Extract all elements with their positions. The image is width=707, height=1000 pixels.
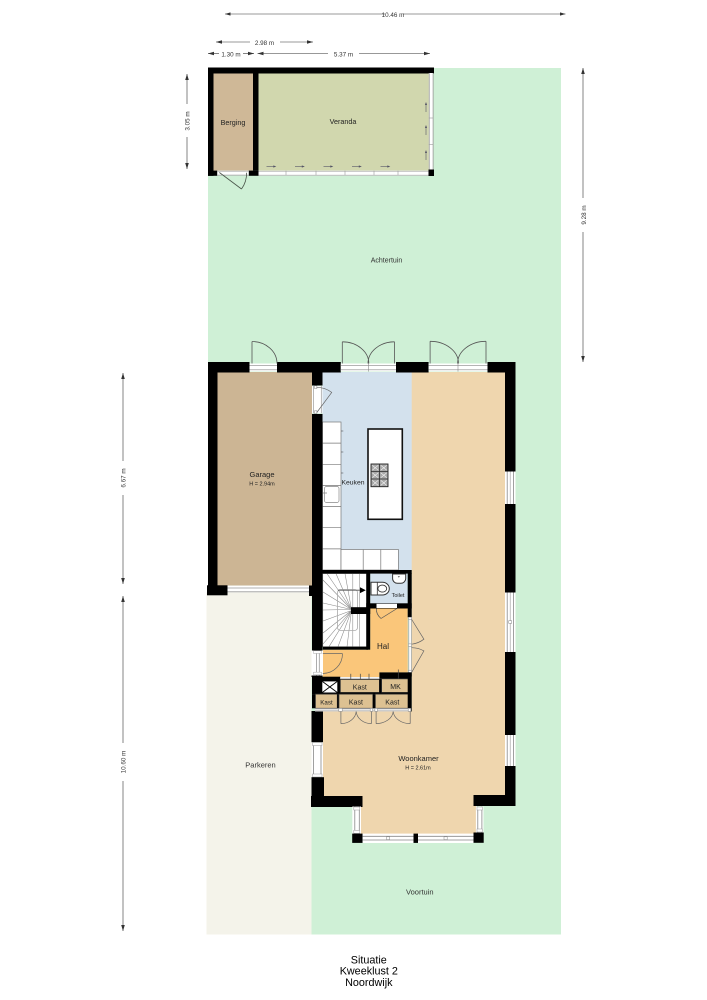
svg-text:6.67 m: 6.67 m <box>121 468 128 487</box>
svg-text:H = 2.94m: H = 2.94m <box>249 482 275 488</box>
svg-text:Voortuin: Voortuin <box>406 888 434 897</box>
svg-text:H = 2.61m: H = 2.61m <box>405 766 431 772</box>
svg-text:Toilet: Toilet <box>392 593 405 599</box>
svg-text:Kast: Kast <box>385 700 399 707</box>
svg-text:10.46 m: 10.46 m <box>382 12 405 19</box>
svg-text:Kast: Kast <box>353 684 367 691</box>
svg-text:5.37 m: 5.37 m <box>334 52 353 59</box>
svg-text:MK: MK <box>390 684 401 691</box>
svg-text:3.05 m: 3.05 m <box>184 111 191 130</box>
svg-text:10.60 m: 10.60 m <box>121 751 128 774</box>
svg-text:Keuken: Keuken <box>341 480 364 487</box>
svg-text:Achtertuin: Achtertuin <box>371 258 403 265</box>
svg-text:Situatie: Situatie <box>351 955 387 967</box>
svg-text:9.28 m: 9.28 m <box>581 205 588 224</box>
svg-text:Hal: Hal <box>377 642 389 651</box>
svg-text:Kast: Kast <box>320 700 333 707</box>
svg-text:Kweeklust 2: Kweeklust 2 <box>340 966 398 978</box>
svg-text:Kast: Kast <box>349 700 363 707</box>
svg-text:Parkeren: Parkeren <box>245 761 275 770</box>
svg-text:Noordwijk: Noordwijk <box>345 977 393 989</box>
svg-text:Berging: Berging <box>221 118 246 127</box>
svg-text:1.30 m: 1.30 m <box>221 52 240 59</box>
svg-text:2.98 m: 2.98 m <box>255 40 274 47</box>
svg-text:Woonkamer: Woonkamer <box>398 754 439 763</box>
svg-text:Garage: Garage <box>249 470 274 479</box>
svg-text:Veranda: Veranda <box>330 117 357 126</box>
